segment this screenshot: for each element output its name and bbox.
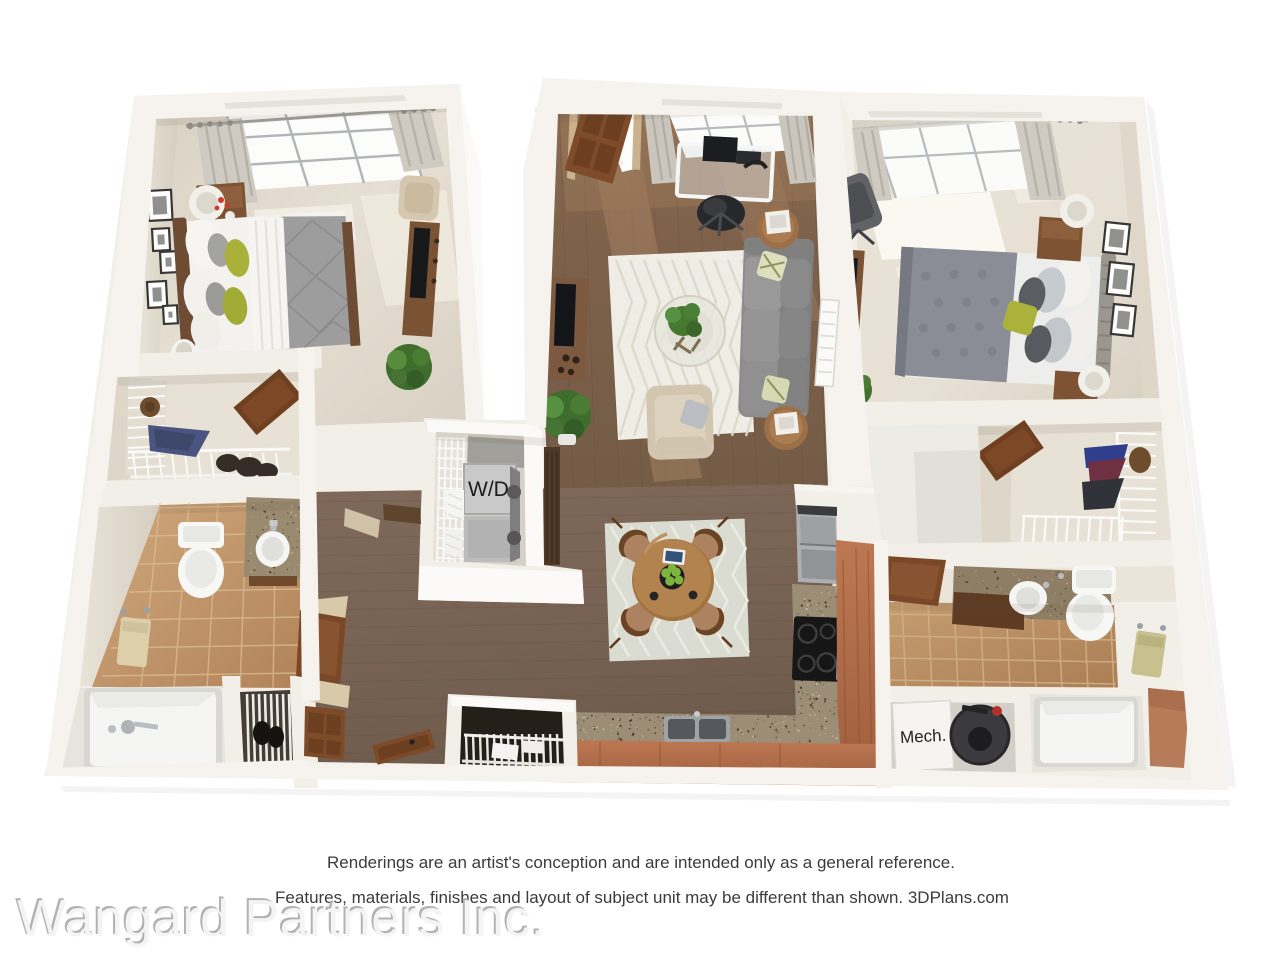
svg-text:Mech.: Mech. [900,726,947,747]
svg-text:Renderings are an artist's con: Renderings are an artist's conception an… [327,853,955,872]
svg-text:W/D: W/D [468,478,509,501]
svg-text:Wangard Partners Inc.: Wangard Partners Inc. [17,890,546,948]
